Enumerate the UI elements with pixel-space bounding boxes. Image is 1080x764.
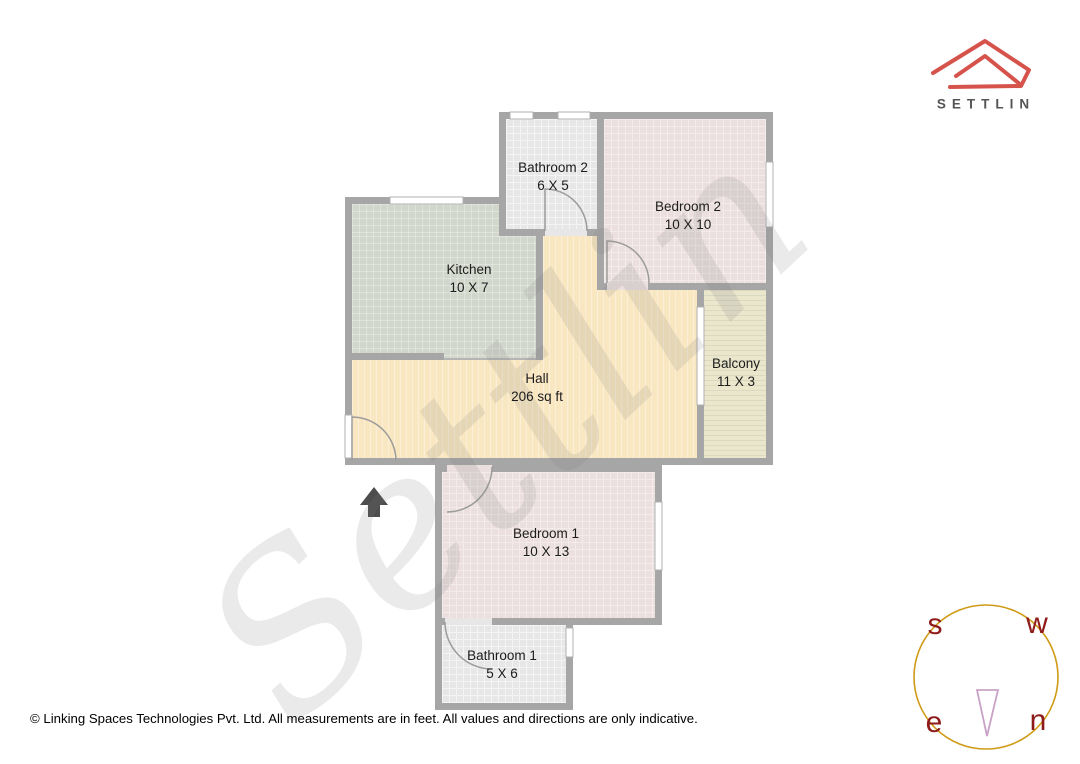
door-arc — [545, 189, 587, 231]
label-kitchen: Kitchen 10 X 7 — [446, 261, 491, 297]
compass-south: s — [928, 608, 943, 642]
wall-segment — [345, 458, 773, 465]
entrance-arrow-icon — [360, 487, 388, 517]
floorplan-page: Settlin Bathroom 2 6 X 5 Bedroom 2 10 X … — [0, 0, 1080, 764]
window — [510, 112, 533, 119]
wall-segment — [566, 657, 573, 710]
wall-segment — [536, 229, 543, 360]
wall-segment — [597, 112, 604, 283]
window — [655, 502, 662, 570]
wall-segment — [766, 283, 773, 465]
wall-segment — [766, 112, 773, 162]
door-arc — [447, 467, 492, 512]
room-dims: 10 X 7 — [446, 279, 491, 297]
wall-segment — [566, 618, 573, 628]
label-bathroom1: Bathroom 1 5 X 6 — [467, 647, 537, 683]
room-name: Bathroom 2 — [518, 159, 588, 177]
window — [566, 628, 573, 657]
label-bedroom1: Bedroom 1 10 X 13 — [513, 525, 579, 561]
window — [345, 415, 352, 458]
wall-segment — [444, 358, 536, 360]
wall-segment — [648, 283, 773, 290]
room-name: Kitchen — [446, 261, 491, 279]
room-name: Balcony — [712, 355, 760, 373]
wall-segment — [345, 353, 444, 360]
room-dims: 10 X 10 — [655, 216, 721, 234]
label-hall: Hall 206 sq ft — [511, 370, 563, 406]
door-arc — [607, 241, 649, 283]
room-dims: 11 X 3 — [712, 373, 760, 391]
window — [390, 197, 463, 204]
wall-segment — [697, 290, 704, 307]
compass-west: w — [1026, 607, 1048, 641]
settlin-logo-icon — [933, 41, 1029, 87]
copyright-text: © Linking Spaces Technologies Pvt. Ltd. … — [30, 711, 698, 726]
window — [697, 307, 704, 405]
compass-east: e — [926, 706, 943, 740]
window — [766, 162, 773, 227]
room-name: Hall — [511, 370, 563, 388]
wall-segment — [655, 570, 662, 625]
wall-segment — [499, 112, 506, 236]
wall-segment — [435, 465, 442, 710]
room-name: Bathroom 1 — [467, 647, 537, 665]
room-name: Bedroom 1 — [513, 525, 579, 543]
wall-segment — [345, 197, 352, 415]
room-dims: 10 X 13 — [513, 543, 579, 561]
room-dims: 6 X 5 — [518, 177, 588, 195]
wall-segment — [597, 283, 607, 290]
label-bedroom2: Bedroom 2 10 X 10 — [655, 198, 721, 234]
door-arc — [352, 417, 396, 461]
wall-segment — [766, 227, 773, 283]
label-balcony: Balcony 11 X 3 — [712, 355, 760, 391]
room-name: Bedroom 2 — [655, 198, 721, 216]
wall-segment — [533, 112, 558, 119]
wall-segment — [463, 197, 506, 204]
wall-segment — [492, 618, 662, 625]
compass-needle-icon — [977, 690, 998, 736]
window — [558, 112, 590, 119]
room-dims: 206 sq ft — [511, 388, 563, 406]
label-bathroom2: Bathroom 2 6 X 5 — [518, 159, 588, 195]
wall-segment — [655, 465, 662, 502]
wall-segment — [587, 229, 604, 236]
wall-segment — [590, 112, 773, 119]
wall-segment — [435, 618, 445, 625]
wall-segment — [435, 703, 573, 710]
door-arcs — [352, 189, 649, 669]
wall-segment — [492, 465, 662, 472]
compass-north: n — [1030, 704, 1047, 738]
room-dims: 5 X 6 — [467, 665, 537, 683]
wall-segment — [697, 405, 704, 465]
